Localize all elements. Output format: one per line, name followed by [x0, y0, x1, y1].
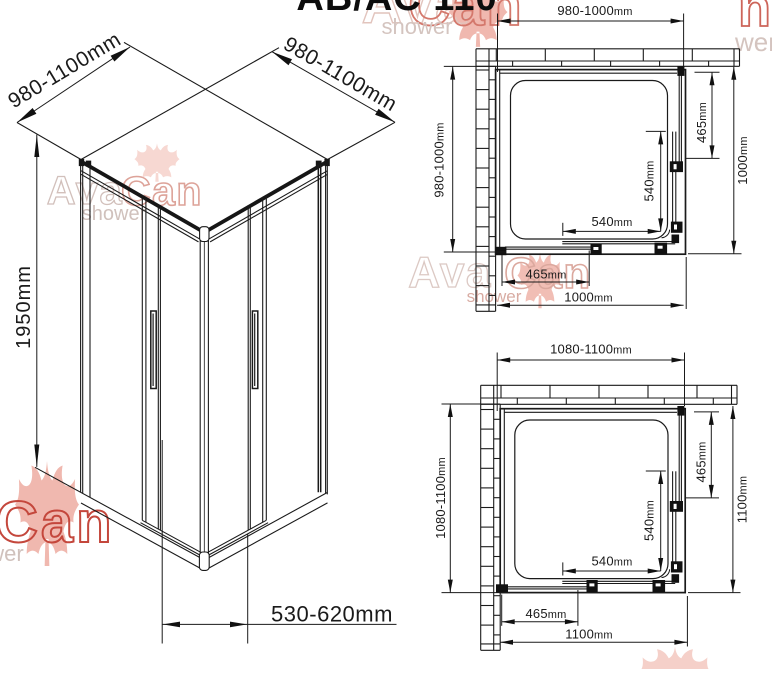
svg-text:1100mm: 1100mm	[565, 627, 613, 642]
svg-text:980-1000mm: 980-1000mm	[557, 3, 632, 18]
svg-text:465mm: 465mm	[694, 441, 709, 482]
svg-text:AB/AC 110: AB/AC 110	[296, 0, 497, 19]
svg-text:ower: ower	[0, 541, 24, 566]
svg-text:980-1000mm: 980-1000mm	[432, 122, 447, 197]
svg-text:1080-1100mm: 1080-1100mm	[550, 342, 632, 357]
svg-text:1080-1100mm: 1080-1100mm	[433, 457, 448, 539]
svg-text:540mm: 540mm	[642, 160, 657, 201]
svg-text:540mm: 540mm	[642, 500, 657, 541]
svg-text:540mm: 540mm	[591, 554, 632, 569]
svg-text:540mm: 540mm	[591, 214, 632, 229]
svg-text:465mm: 465mm	[694, 102, 709, 143]
svg-text:1000mm: 1000mm	[735, 136, 750, 184]
svg-text:shower: shower	[467, 287, 522, 306]
svg-text:530-620mm: 530-620mm	[271, 602, 393, 627]
svg-text:1000mm: 1000mm	[564, 290, 612, 305]
svg-text:1100mm: 1100mm	[735, 476, 750, 524]
svg-text:465mm: 465mm	[525, 606, 566, 621]
svg-text:465mm: 465mm	[525, 267, 566, 282]
svg-text:1950mm: 1950mm	[13, 265, 35, 349]
